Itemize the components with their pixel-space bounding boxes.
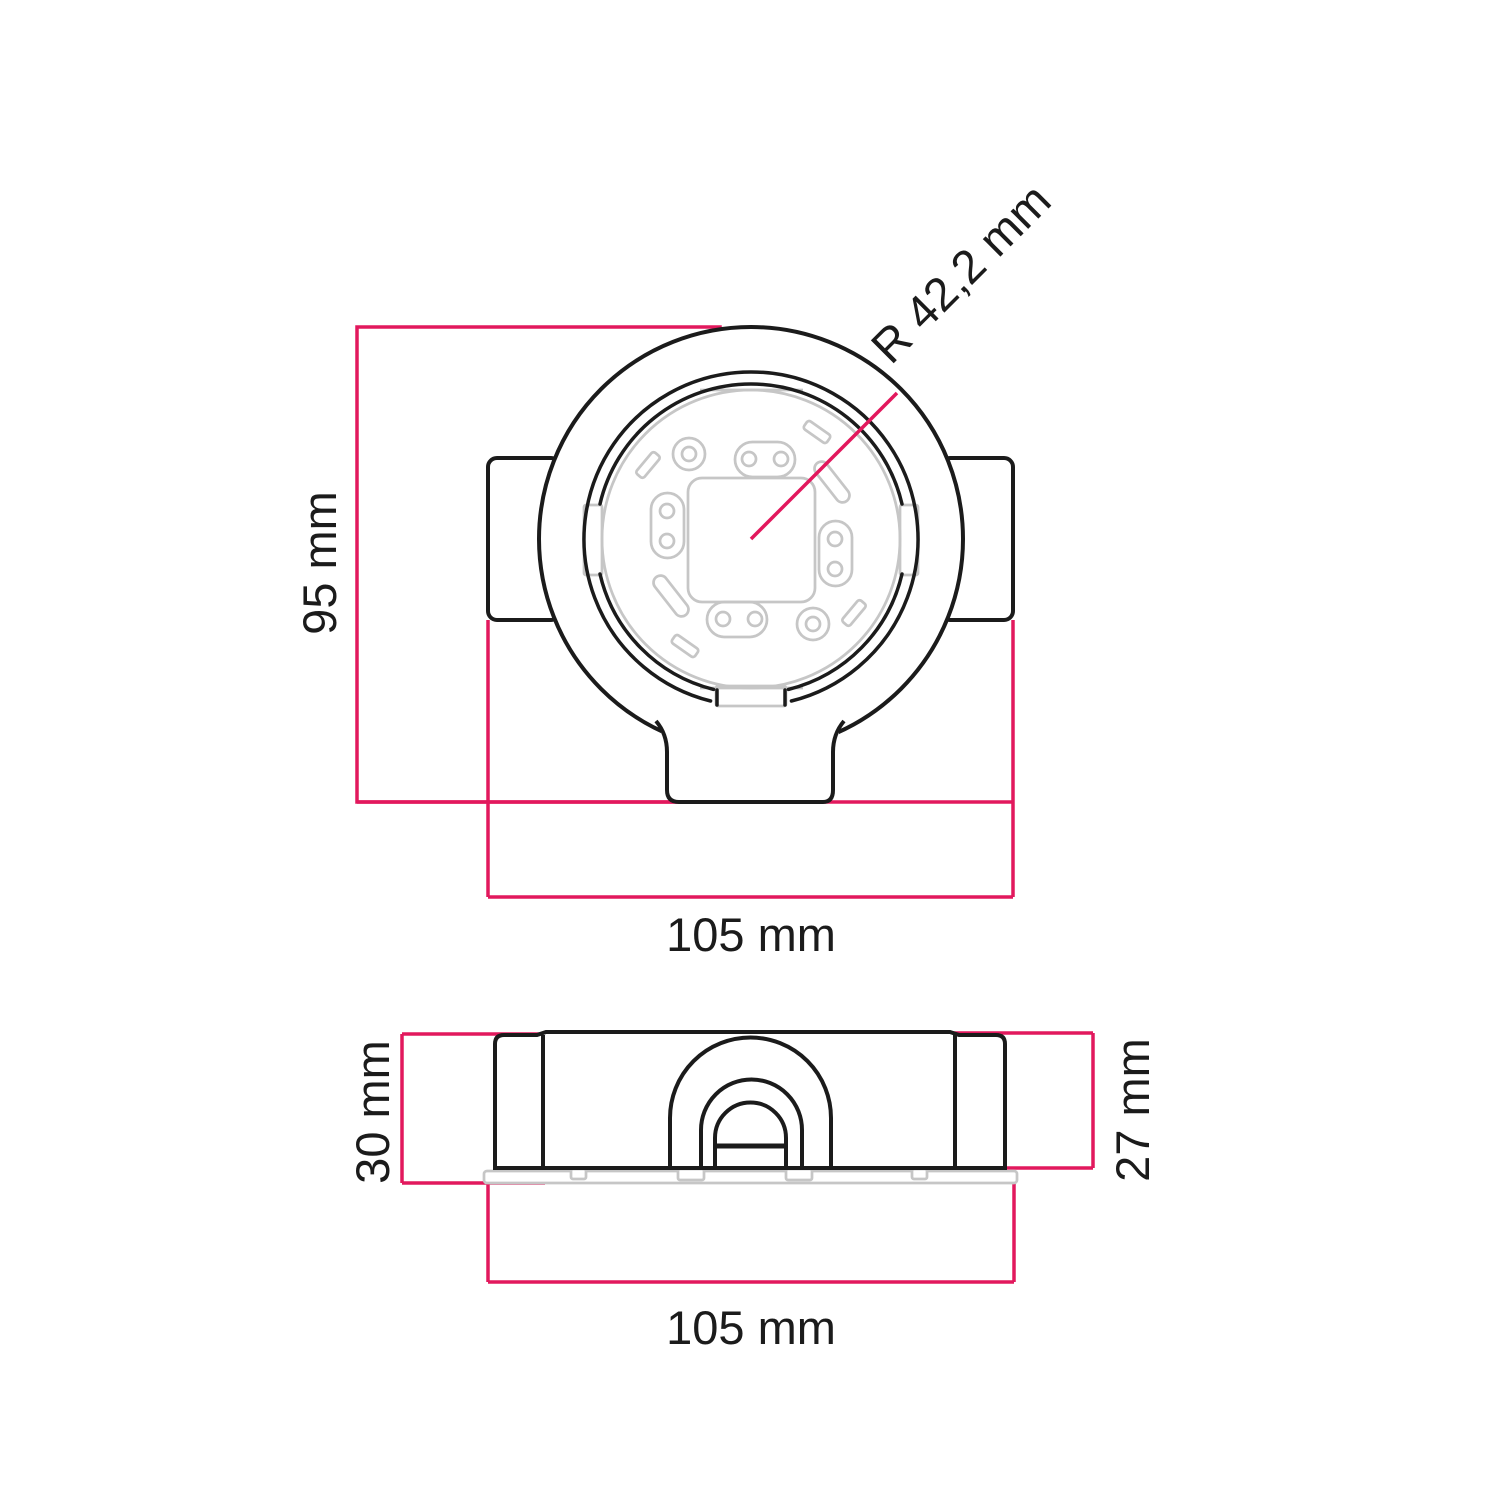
base-clip-3: [786, 1169, 812, 1180]
label-top-width: 105 mm: [666, 908, 836, 961]
base-clip-2: [678, 1169, 704, 1180]
label-side-body-height: 27 mm: [1106, 1038, 1159, 1182]
base-clip-1: [571, 1169, 586, 1179]
bottom-tab: [661, 700, 839, 802]
label-side-width: 105 mm: [666, 1301, 836, 1354]
label-top-height: 95 mm: [293, 491, 346, 635]
drawing-canvas: 95 mm 105 mm R 42,2 mm 30 mm 27 mm: [0, 0, 1500, 1500]
label-side-total-height: 30 mm: [346, 1040, 399, 1184]
top-view: 95 mm 105 mm R 42,2 mm: [293, 173, 1061, 961]
base-plate: [484, 1171, 1017, 1183]
label-radius: R 42,2 mm: [861, 173, 1061, 373]
base-clip-4: [912, 1169, 927, 1179]
side-view: 30 mm 27 mm 105 mm: [346, 1032, 1159, 1354]
technical-drawing: 95 mm 105 mm R 42,2 mm 30 mm 27 mm: [0, 0, 1500, 1500]
